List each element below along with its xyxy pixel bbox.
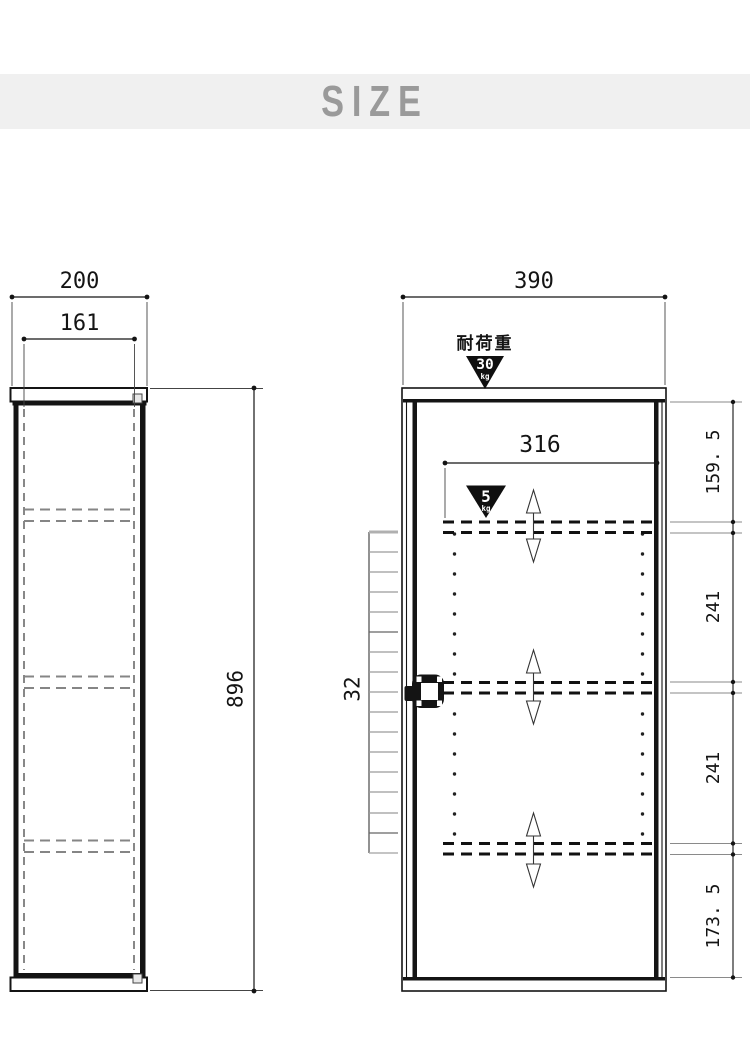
- load-capacity-unit: kg: [465, 373, 505, 381]
- dim-side-shelf2: 241: [705, 752, 723, 785]
- dim-left-inner-width: 161: [24, 313, 135, 335]
- dim-left-height: 896: [226, 670, 247, 708]
- dim-side-shelf1: 241: [705, 591, 723, 624]
- size-diagram-page: SIZE: [0, 0, 750, 1047]
- left-cabinet-side-view: [10, 295, 263, 994]
- right-cabinet-front-view: [369, 295, 742, 991]
- hole-pitch-ruler: [369, 532, 398, 853]
- dim-left-outer-width: 200: [12, 271, 147, 293]
- shelf-load-unit: kg: [466, 505, 506, 513]
- shelf-load-value: 5: [466, 489, 506, 505]
- dim-right-outer-width: 390: [403, 271, 665, 293]
- drawing-linework: [0, 0, 750, 1047]
- dim-side-bottom: 173. 5: [705, 883, 723, 948]
- load-capacity-label: 耐荷重: [430, 335, 540, 352]
- dim-right-inner-width: 316: [440, 434, 640, 457]
- dim-side-top: 159. 5: [705, 429, 723, 494]
- door-latch-icon: [133, 974, 142, 983]
- load-capacity-value: 30: [465, 358, 505, 373]
- dim-hole-pitch: 32: [343, 676, 364, 701]
